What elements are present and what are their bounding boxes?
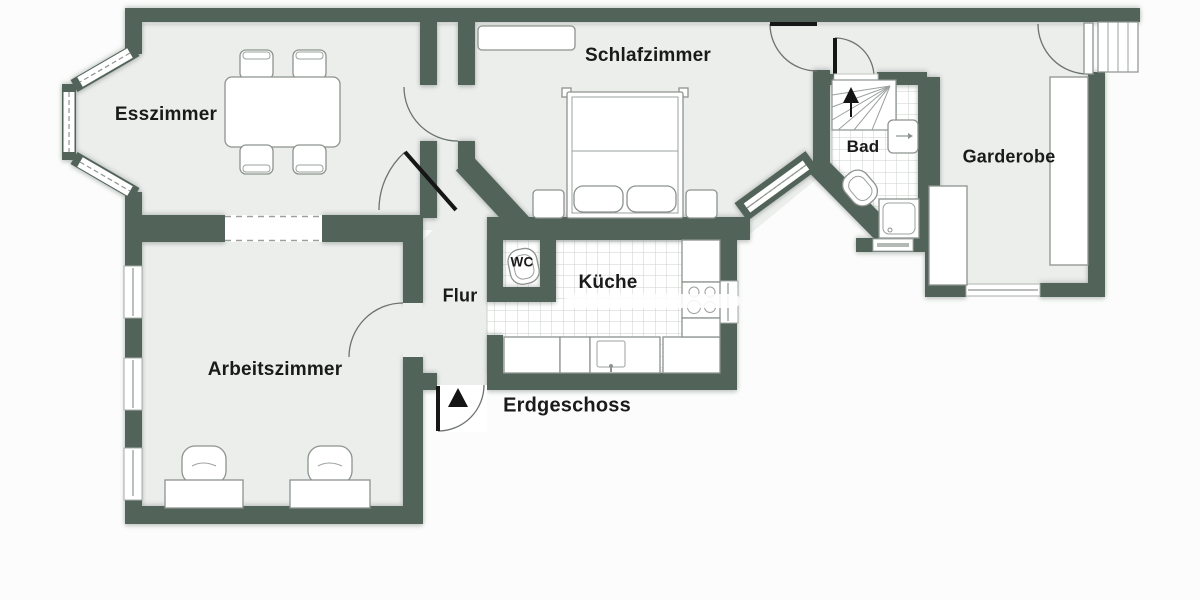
bad-window <box>873 239 913 251</box>
desk <box>165 480 243 508</box>
watermark-smudge <box>565 294 740 308</box>
room-label-flur: Flur <box>443 286 478 307</box>
wall-entry-left-of-door <box>418 373 437 390</box>
kitchen-sink-cabinet <box>590 337 660 373</box>
wall-kitchen-left-b <box>487 335 503 375</box>
desk-chair <box>308 446 352 484</box>
room-label-arbeitszimmer: Arbeitszimmer <box>208 359 343 381</box>
wall-ess-arbeit-left <box>125 215 225 242</box>
room-label-bad: Bad <box>847 137 880 157</box>
arbeitszimmer-window-3 <box>124 448 142 500</box>
pillow <box>574 186 623 212</box>
dining-chair <box>293 50 326 79</box>
dining-chair <box>293 145 326 174</box>
room-label-garderobe: Garderobe <box>963 147 1056 168</box>
kitchen-counter <box>682 240 720 282</box>
flur-nook-floor <box>437 24 458 170</box>
room-label-kueche: Küche <box>578 272 637 294</box>
desk <box>290 480 370 508</box>
wall-kitchen-bottom <box>487 373 737 390</box>
double-bed <box>562 88 688 218</box>
desk-chair <box>182 446 226 484</box>
wall-ess-arbeit-right <box>322 215 423 242</box>
bad-sink <box>888 120 918 153</box>
room-label-wc: WC <box>511 255 534 270</box>
nightstand <box>533 190 564 218</box>
wall-arbeits-bottom <box>125 506 423 524</box>
kitchen-counter <box>560 337 590 373</box>
dining-table <box>225 77 340 147</box>
wall-wc-bottom <box>487 287 556 302</box>
dining-chair <box>240 50 273 79</box>
wall-schlafzimmer-left-a <box>458 22 475 85</box>
arbeitszimmer-window-1 <box>124 266 142 318</box>
kitchen-counter <box>682 318 720 337</box>
wall-esszimmer-right-a <box>420 22 437 85</box>
exterior-steps <box>1098 22 1138 72</box>
wall-top <box>125 8 1140 22</box>
wall-arbeits-right-a <box>403 242 423 303</box>
entrance-door <box>437 385 487 432</box>
kitchen-counter <box>504 337 560 373</box>
building-door-leaf <box>1084 23 1093 74</box>
wall-opening-passage <box>225 215 322 242</box>
wardrobe <box>478 26 575 50</box>
wall-garderobe-right <box>1088 72 1105 297</box>
room-label-esszimmer: Esszimmer <box>115 104 217 126</box>
garderobe-wardrobe-tall <box>1050 77 1088 265</box>
wall-schlaf-bottom <box>528 217 750 240</box>
floorplan-drawing <box>0 0 1200 600</box>
plan-title: Erdgeschoss <box>503 395 631 418</box>
garderobe-wardrobe-small <box>929 186 967 285</box>
shower <box>879 199 919 238</box>
nightstand <box>686 190 717 218</box>
arbeitszimmer-window-2 <box>124 358 142 410</box>
garderobe-window <box>966 284 1040 296</box>
kitchen-counter <box>663 337 720 373</box>
winder-stairs <box>832 74 896 130</box>
floorplan-canvas: Esszimmer Schlafzimmer Bad Garderobe Arb… <box>0 0 1200 600</box>
pillow <box>627 186 676 212</box>
dining-chair <box>240 145 273 174</box>
room-label-schlafzimmer: Schlafzimmer <box>585 45 711 67</box>
